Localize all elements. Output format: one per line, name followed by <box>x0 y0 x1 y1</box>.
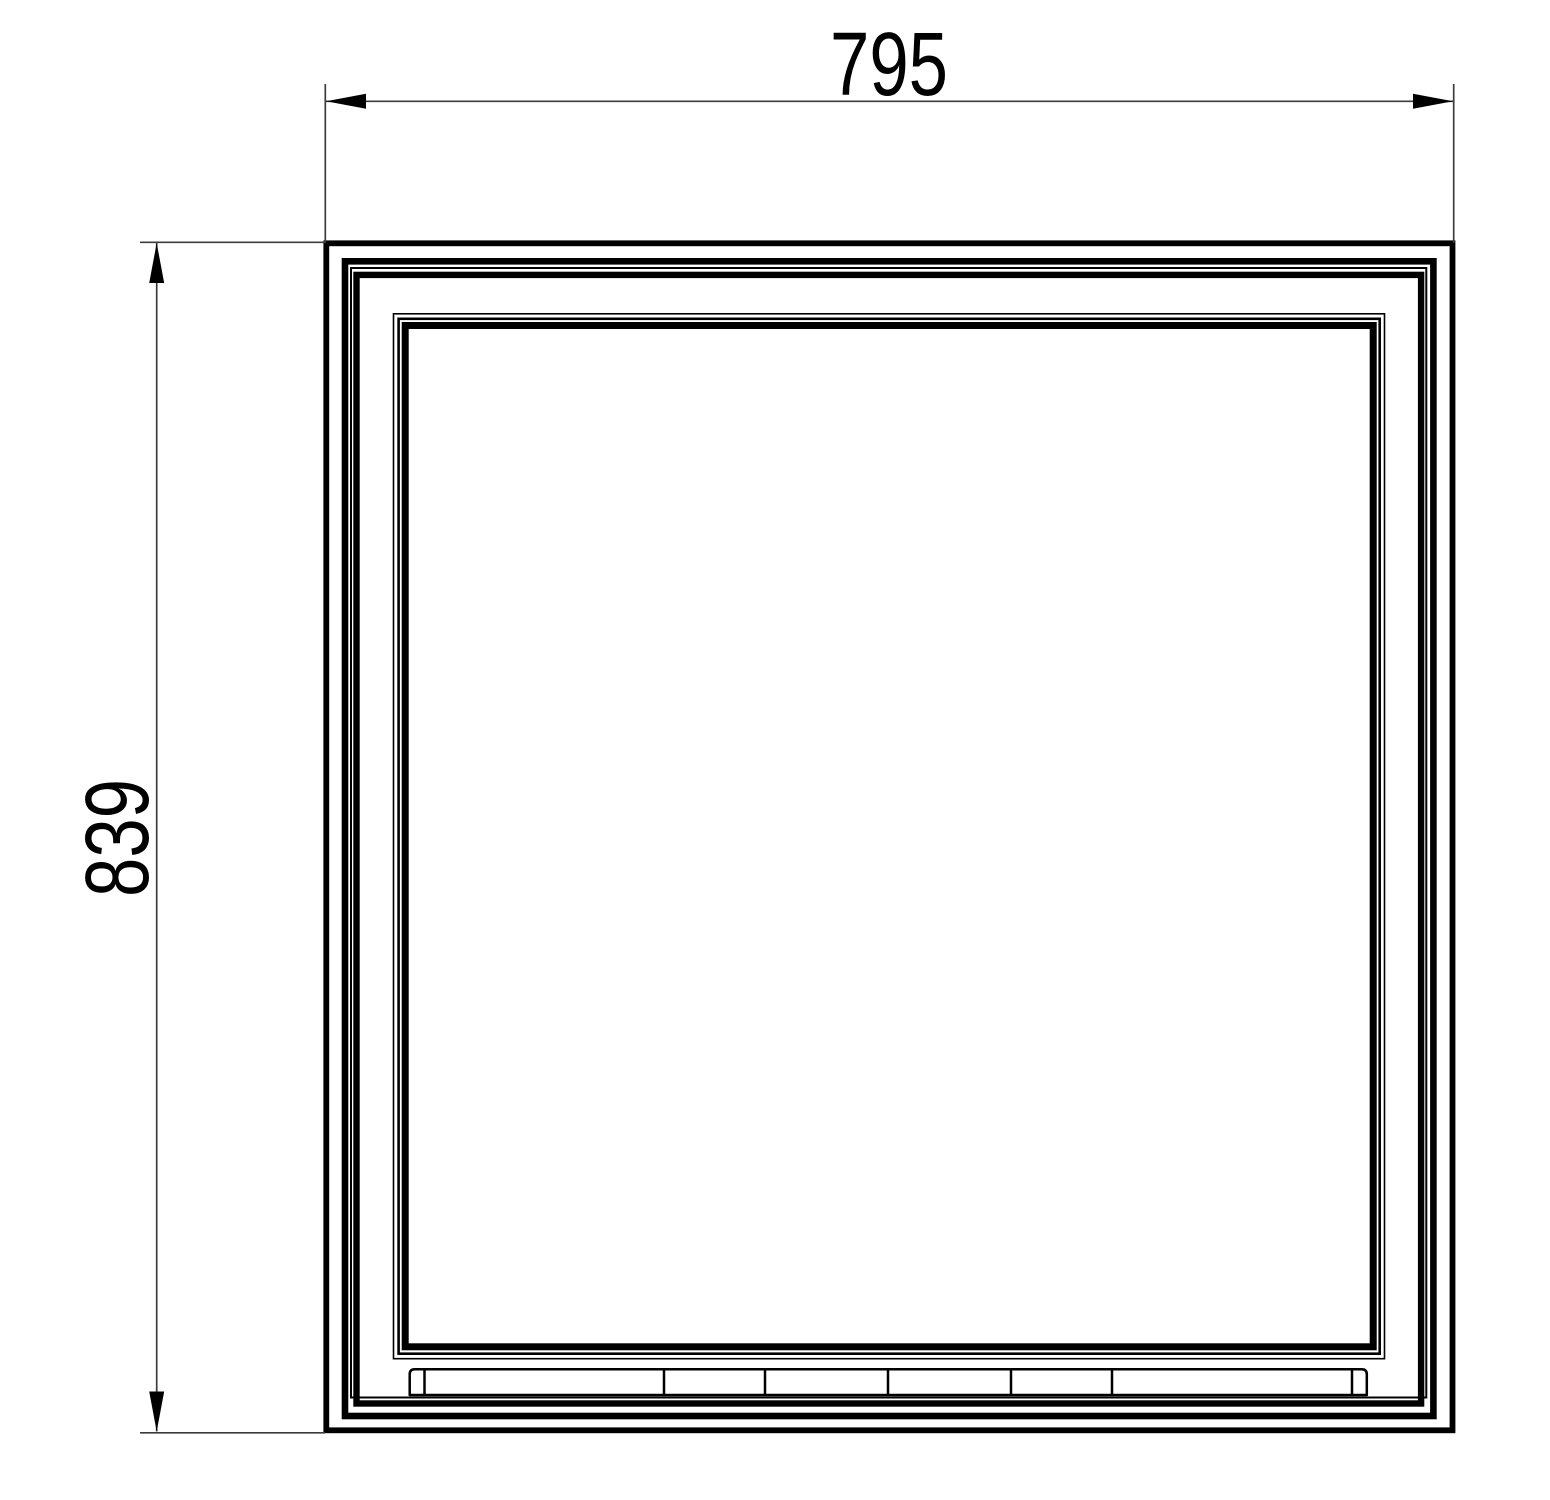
bottom-ledge <box>410 1369 1367 1395</box>
frame-front-view-drawing: 795 839 <box>0 0 1550 1500</box>
ledge-divider-lines <box>425 1369 1353 1395</box>
panel-middle-rect <box>399 319 1380 1354</box>
frame-second-rect <box>345 261 1433 1416</box>
arrowhead-up-icon <box>149 243 164 283</box>
height-dimension-label: 839 <box>68 779 168 897</box>
inner-panel <box>394 314 1385 1359</box>
arrowhead-left-icon <box>326 94 366 109</box>
frame-profile <box>326 243 1452 1430</box>
frame-inner-thick-rect <box>357 275 1422 1404</box>
arrowhead-right-icon <box>1413 94 1453 109</box>
width-dimension-label: 795 <box>830 15 948 115</box>
panel-inner-rect <box>405 326 1373 1347</box>
width-dimension: 795 <box>325 15 1453 243</box>
frame-inner-thin-rect <box>351 268 1426 1398</box>
panel-outer-rect <box>394 314 1385 1359</box>
technical-drawing-page: 795 839 <box>0 0 1550 1500</box>
arrowhead-down-icon <box>149 1392 164 1432</box>
height-dimension: 839 <box>68 242 326 1433</box>
frame-outer-rect <box>326 243 1452 1430</box>
